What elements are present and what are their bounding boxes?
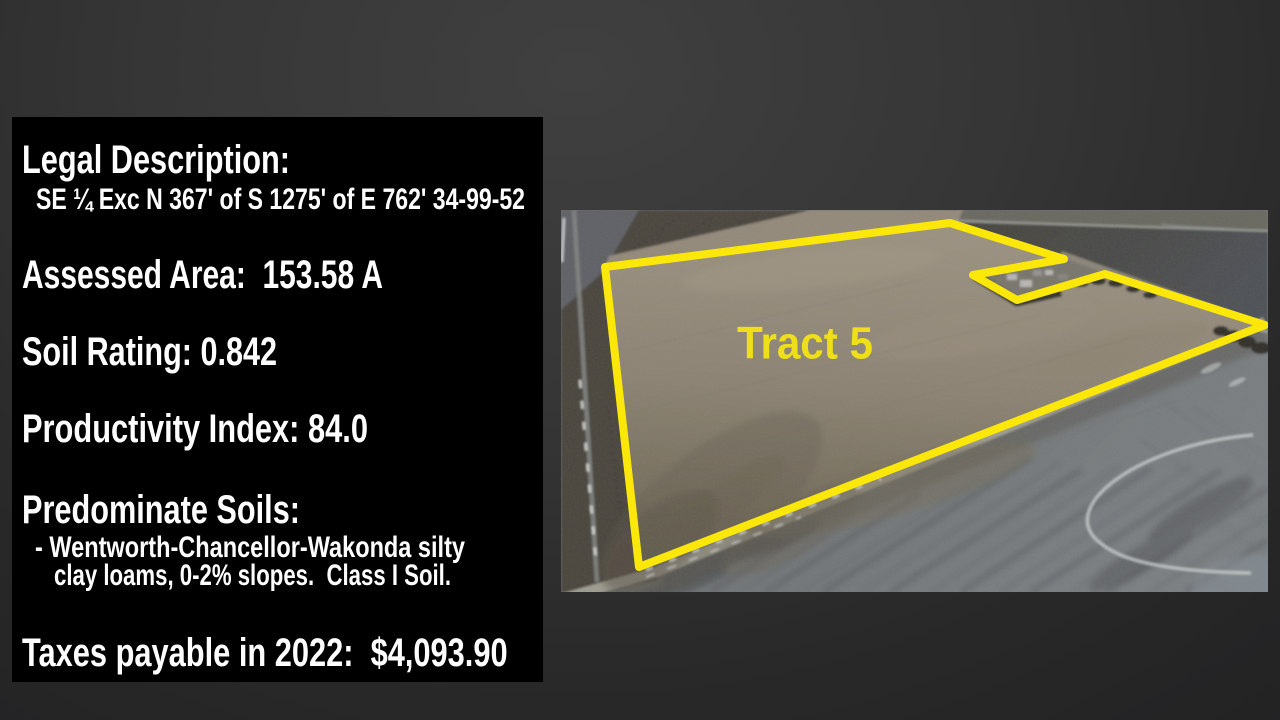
svg-text:Tract 5: Tract 5 [737, 318, 873, 369]
